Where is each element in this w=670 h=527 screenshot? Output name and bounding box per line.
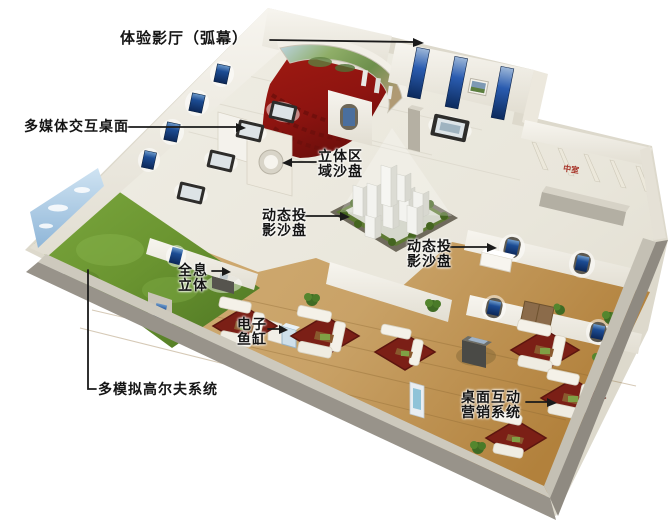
label-dynamic-sandbox-left: 动态投 影沙盘 [262,208,307,238]
stub-wall-niche-picture [340,104,358,130]
label-dynamic-sandbox-left-line1: 动态投 [262,208,307,223]
label-dynamic-sandbox-right-line1: 动态投 [407,239,452,254]
label-dynamic-sandbox-right-line2: 影沙盘 [407,254,452,269]
label-fish-tank-line2: 鱼缸 [237,332,267,347]
label-stereo-sandbox-line1: 立体区 [318,149,363,164]
label-dynamic-sandbox-right: 动态投 影沙盘 [407,239,452,269]
label-fish-tank: 电子 鱼缸 [237,317,267,347]
label-experience-theater: 体验影厅（弧幕） [120,31,248,46]
exhibition-floorplan-figure: 体验影厅（弧幕） 多媒体交互桌面 立体区 域沙盘 动态投 影沙盘 动态投 影沙盘… [0,0,670,527]
label-dynamic-sandbox-left-line2: 影沙盘 [262,223,307,238]
framed-picture [468,78,488,95]
label-holographic: 全息 立体 [178,263,208,293]
label-stereo-sandbox-line2: 域沙盘 [318,164,363,179]
label-desktop-marketing-line1: 桌面互动 [461,390,521,405]
label-fish-tank-line1: 电子 [237,317,267,332]
label-multimedia-desk: 多媒体交互桌面 [24,119,129,134]
label-holographic-line2: 立体 [178,278,208,293]
hall-pillar [408,108,420,152]
stereo-sandbox-disc [259,150,283,174]
label-desktop-marketing-line2: 营销系统 [461,405,521,420]
label-holographic-line1: 全息 [178,263,208,278]
label-stereo-sandbox: 立体区 域沙盘 [318,149,363,179]
label-golf-simulator: 多模拟高尔夫系统 [98,382,218,397]
upright-display-panel [410,382,424,418]
label-desktop-marketing: 桌面互动 营销系统 [461,390,521,420]
floorplan-scene [0,0,670,527]
